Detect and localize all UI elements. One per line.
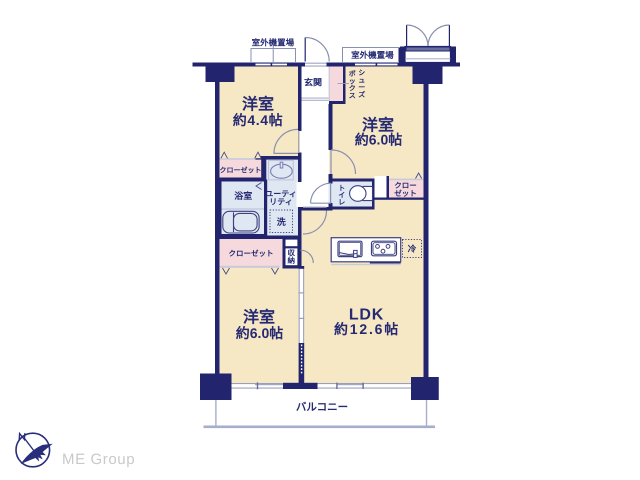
svg-text:バルコニー: バルコニー [296, 402, 348, 414]
svg-text:ゼット: ゼット [394, 189, 417, 198]
svg-text:シ: シ [358, 69, 365, 77]
svg-text:リティ: リティ [269, 198, 293, 207]
svg-text:ズ: ズ [358, 90, 365, 99]
svg-text:室外機置場: 室外機置場 [351, 50, 394, 60]
svg-text:約6.0帖: 約6.0帖 [236, 325, 283, 341]
svg-text:冷: 冷 [408, 244, 417, 254]
svg-text:約4.4帖: 約4.4帖 [233, 112, 283, 128]
svg-text:ク: ク [349, 85, 356, 93]
svg-text:レ: レ [338, 198, 345, 206]
svg-text:ス: ス [349, 92, 356, 100]
svg-text:洋室: 洋室 [242, 96, 274, 114]
svg-text:玄関: 玄関 [304, 78, 322, 88]
svg-text:ー: ー [358, 85, 365, 92]
svg-text:ト: ト [338, 184, 345, 192]
svg-text:ボ: ボ [349, 70, 356, 78]
svg-text:浴室: 浴室 [234, 191, 252, 201]
svg-text:約6.0帖: 約6.0帖 [355, 132, 402, 148]
svg-text:約12.6帖: 約12.6帖 [334, 321, 400, 337]
svg-text:室外機置場: 室外機置場 [252, 38, 295, 48]
svg-text:ME Group: ME Group [62, 451, 135, 468]
svg-text:洗: 洗 [277, 217, 286, 227]
svg-text:納: 納 [288, 256, 296, 265]
svg-text:洋室: 洋室 [243, 309, 275, 327]
svg-text:ュ: ュ [358, 77, 365, 84]
svg-text:クローゼット: クローゼット [220, 165, 262, 174]
svg-text:ッ: ッ [349, 78, 356, 85]
svg-text:クローゼット: クローゼット [229, 249, 274, 258]
svg-text:イ: イ [338, 191, 345, 199]
